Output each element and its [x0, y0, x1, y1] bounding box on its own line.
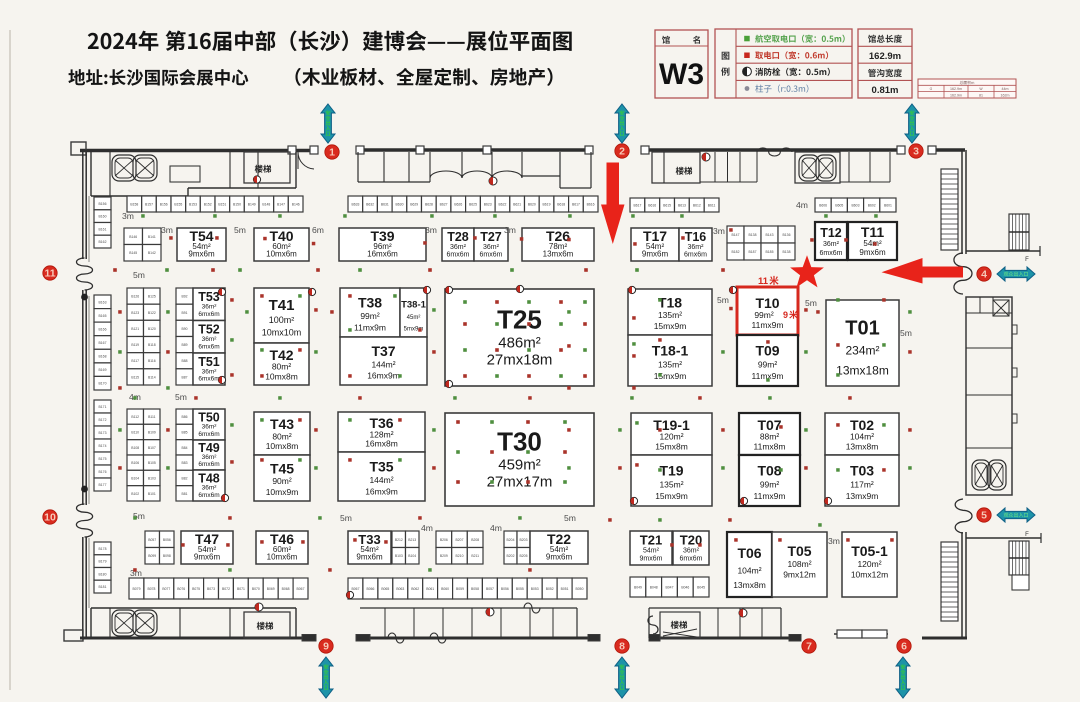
svg-text:B626: B626: [454, 203, 462, 207]
svg-text:B178: B178: [99, 547, 107, 551]
svg-text:9mx6m: 9mx6m: [859, 248, 886, 257]
svg-text:B83: B83: [181, 461, 187, 465]
svg-text:B210: B210: [456, 554, 464, 558]
svg-text:13mx18m: 13mx18m: [836, 363, 889, 377]
svg-text:B119: B119: [131, 343, 139, 347]
svg-text:B069: B069: [267, 587, 275, 591]
svg-text:B179: B179: [99, 560, 107, 564]
svg-text:486m²: 486m²: [498, 335, 541, 352]
svg-text:B212: B212: [395, 538, 403, 542]
svg-text:10: 10: [44, 512, 56, 524]
svg-text:6mx6m: 6mx6m: [198, 376, 219, 383]
svg-text:T05-1: T05-1: [851, 543, 888, 559]
svg-text:B162: B162: [99, 240, 107, 244]
svg-text:3m: 3m: [122, 211, 134, 221]
svg-text:T19: T19: [659, 462, 683, 478]
svg-text:3m: 3m: [161, 225, 173, 235]
svg-text:B049: B049: [634, 586, 642, 590]
svg-text:B147: B147: [732, 233, 740, 237]
svg-text:16mx9m: 16mx9m: [365, 486, 398, 496]
svg-text:11mx9m: 11mx9m: [754, 491, 786, 501]
svg-text:6mx6m: 6mx6m: [680, 555, 703, 562]
svg-text:B89: B89: [181, 343, 187, 347]
svg-text:B107: B107: [148, 446, 156, 450]
svg-text:B079: B079: [133, 587, 141, 591]
svg-text:F: F: [1025, 257, 1029, 263]
svg-text:6: 6: [901, 641, 907, 653]
svg-text:88m²: 88m²: [760, 432, 780, 442]
svg-text:81: 81: [979, 93, 983, 97]
svg-text:B111: B111: [148, 415, 156, 419]
svg-text:13mx8m: 13mx8m: [733, 580, 766, 590]
svg-text:B206: B206: [440, 538, 448, 542]
svg-text:B625: B625: [469, 203, 477, 207]
svg-text:F: F: [1025, 532, 1029, 538]
svg-text:B142: B142: [148, 251, 156, 255]
svg-text:44m: 44m: [1002, 87, 1009, 91]
svg-text:9: 9: [323, 641, 329, 653]
svg-text:G: G: [930, 87, 933, 91]
svg-text:13mx9m: 13mx9m: [846, 491, 879, 501]
svg-text:10mx6m: 10mx6m: [267, 553, 298, 562]
svg-text:B205: B205: [520, 554, 528, 558]
svg-text:T18: T18: [658, 294, 682, 310]
svg-text:B213: B213: [408, 538, 416, 542]
svg-text:11: 11: [758, 276, 769, 287]
svg-text:B202: B202: [507, 554, 515, 558]
svg-text:B173: B173: [99, 431, 107, 435]
svg-text:B149: B149: [248, 203, 256, 207]
svg-text:B611: B611: [708, 204, 716, 208]
svg-text:36m²: 36m²: [483, 244, 500, 251]
svg-text:11: 11: [44, 268, 55, 280]
svg-text:B630: B630: [396, 203, 404, 207]
svg-text:5m: 5m: [175, 392, 187, 402]
svg-text:B627: B627: [440, 203, 448, 207]
svg-text:9mx6m: 9mx6m: [546, 553, 573, 562]
svg-text:27mx18m: 27mx18m: [487, 352, 553, 369]
svg-text:B058: B058: [471, 587, 479, 591]
svg-text:B629: B629: [410, 203, 418, 207]
svg-text:B066: B066: [366, 587, 374, 591]
svg-text:6mx6m: 6mx6m: [198, 492, 219, 499]
svg-text:T49: T49: [198, 441, 220, 455]
svg-text:B112: B112: [131, 415, 139, 419]
svg-text:3m: 3m: [425, 225, 437, 235]
svg-text:B631: B631: [381, 203, 389, 207]
svg-text:6m: 6m: [312, 225, 324, 235]
svg-text:B153: B153: [189, 203, 197, 207]
svg-text:B059: B059: [456, 587, 464, 591]
svg-text:B605: B605: [835, 204, 843, 208]
svg-text:B633: B633: [351, 203, 359, 207]
svg-text:B143: B143: [766, 233, 774, 237]
svg-text:99m²: 99m²: [758, 359, 778, 369]
svg-text:T11: T11: [861, 224, 885, 240]
svg-text:T42: T42: [269, 347, 293, 363]
svg-text:B046: B046: [681, 586, 689, 590]
svg-text:B88: B88: [181, 359, 187, 363]
svg-text:T16: T16: [685, 230, 707, 244]
svg-text:B106: B106: [131, 461, 139, 465]
svg-text:8: 8: [619, 641, 625, 653]
svg-text:B072: B072: [222, 587, 230, 591]
svg-text:B068: B068: [282, 587, 290, 591]
svg-text:10mx12m: 10mx12m: [851, 570, 888, 580]
svg-text:16mx6m: 16mx6m: [367, 250, 398, 259]
svg-text:B116: B116: [148, 359, 156, 363]
svg-text:7: 7: [806, 641, 812, 653]
svg-text:T35: T35: [369, 459, 393, 475]
svg-text:5m: 5m: [900, 328, 912, 338]
svg-text:B617: B617: [633, 204, 641, 208]
svg-text:11mx8m: 11mx8m: [754, 441, 786, 451]
svg-text:T53: T53: [198, 290, 220, 304]
svg-text:104m²: 104m²: [850, 432, 874, 442]
svg-text:100m²: 100m²: [269, 315, 295, 325]
svg-text:B123: B123: [131, 311, 139, 315]
svg-text:T45: T45: [270, 460, 294, 476]
svg-text:B166: B166: [99, 327, 107, 331]
svg-text:B155: B155: [174, 203, 182, 207]
svg-text:B051: B051: [561, 587, 569, 591]
svg-text:B067: B067: [297, 587, 305, 591]
svg-text:T52: T52: [198, 323, 220, 337]
svg-text:B85: B85: [181, 431, 187, 435]
svg-text:135m²: 135m²: [659, 479, 683, 489]
svg-text:3m: 3m: [504, 225, 516, 235]
svg-text:T03: T03: [850, 462, 874, 478]
svg-text:6mx6m: 6mx6m: [820, 250, 843, 257]
svg-text:36m²: 36m²: [202, 336, 218, 343]
svg-text:B618: B618: [557, 203, 565, 207]
svg-text:3m: 3m: [713, 226, 725, 236]
svg-text:B109: B109: [148, 431, 156, 435]
svg-text:B165: B165: [99, 314, 107, 318]
svg-text:B161: B161: [99, 227, 107, 231]
svg-text:B182: B182: [732, 250, 740, 254]
svg-text:B172: B172: [99, 418, 107, 422]
svg-text:B602: B602: [868, 204, 876, 208]
svg-text:B620: B620: [528, 203, 536, 207]
svg-text:B82: B82: [181, 477, 187, 481]
svg-text:B056: B056: [501, 587, 509, 591]
svg-text:T06: T06: [737, 545, 761, 561]
svg-text:5: 5: [981, 510, 987, 522]
svg-text:B163: B163: [99, 300, 107, 304]
svg-text:5m: 5m: [564, 513, 576, 523]
svg-text:T21: T21: [640, 533, 662, 548]
svg-text:10mx6m: 10mx6m: [266, 250, 297, 259]
svg-text:T41: T41: [269, 297, 295, 314]
svg-text:0.81m: 0.81m: [872, 85, 899, 96]
svg-text:T38-1: T38-1: [401, 300, 427, 311]
svg-text:T01: T01: [845, 317, 879, 339]
svg-text:B156: B156: [160, 203, 168, 207]
svg-text:B204: B204: [507, 538, 515, 542]
svg-text:B056: B056: [163, 538, 171, 542]
svg-text:B84: B84: [181, 446, 187, 450]
svg-text:B104: B104: [131, 477, 139, 481]
svg-text:11mx9m: 11mx9m: [752, 320, 784, 330]
svg-text:B122: B122: [148, 311, 156, 315]
svg-text:5m: 5m: [133, 270, 145, 280]
svg-text:B632: B632: [366, 203, 374, 207]
svg-text:9mx6m: 9mx6m: [640, 555, 663, 562]
svg-text:2: 2: [619, 146, 625, 158]
svg-text:B211: B211: [471, 554, 479, 558]
svg-text:9mx6m: 9mx6m: [194, 553, 221, 562]
svg-text:T25: T25: [497, 305, 542, 335]
svg-text:B146: B146: [129, 235, 137, 239]
svg-text:T10: T10: [755, 295, 779, 311]
svg-text:B181: B181: [99, 585, 107, 589]
svg-text:6mx6m: 6mx6m: [198, 311, 219, 318]
svg-text:16mx8m: 16mx8m: [365, 439, 398, 449]
svg-text:B171: B171: [99, 405, 107, 409]
svg-text:B619: B619: [543, 203, 551, 207]
svg-text:B157: B157: [145, 203, 153, 207]
svg-text:B141: B141: [148, 235, 156, 239]
svg-text:T30: T30: [497, 427, 542, 457]
svg-text:B146: B146: [292, 203, 300, 207]
svg-text:B150: B150: [233, 203, 241, 207]
svg-text:B103: B103: [148, 477, 156, 481]
svg-text:B101: B101: [148, 492, 156, 496]
svg-text:B078: B078: [147, 587, 155, 591]
svg-text:10mx9m: 10mx9m: [266, 487, 299, 497]
svg-text:4: 4: [981, 269, 987, 281]
svg-text:B077: B077: [162, 587, 170, 591]
svg-text:B91: B91: [181, 311, 187, 315]
svg-text:T09: T09: [755, 342, 779, 358]
svg-text:B617: B617: [572, 203, 580, 207]
svg-text:10mx10m: 10mx10m: [262, 328, 302, 338]
svg-text:144m²: 144m²: [371, 360, 395, 370]
svg-text:B067: B067: [352, 587, 360, 591]
svg-text:162.9m: 162.9m: [950, 87, 962, 91]
svg-text:B168: B168: [99, 355, 107, 359]
svg-text:T27: T27: [480, 230, 502, 244]
svg-text:B170: B170: [99, 382, 107, 386]
svg-text:B117: B117: [131, 359, 139, 363]
svg-text:B92: B92: [181, 295, 187, 299]
svg-text:13mx8m: 13mx8m: [846, 441, 879, 451]
svg-text:B203: B203: [520, 538, 528, 542]
svg-text:4m: 4m: [796, 200, 808, 210]
svg-text:B138: B138: [749, 233, 757, 237]
svg-text:B175: B175: [99, 457, 107, 461]
svg-text:6mx6m: 6mx6m: [198, 461, 219, 468]
svg-text:9mx6m: 9mx6m: [642, 250, 669, 259]
svg-text:10mx8m: 10mx8m: [265, 371, 298, 381]
svg-text:15mx8m: 15mx8m: [655, 441, 688, 451]
svg-text:5m: 5m: [805, 298, 817, 308]
svg-text:117m²: 117m²: [850, 479, 874, 489]
svg-text:4m: 4m: [490, 523, 502, 533]
svg-text:6mx6m: 6mx6m: [447, 252, 470, 259]
svg-text:108m²: 108m²: [787, 559, 811, 569]
svg-text:B187: B187: [749, 250, 757, 254]
svg-text:6mx6m: 6mx6m: [684, 252, 707, 259]
svg-text:B045: B045: [697, 586, 705, 590]
svg-text:5m: 5m: [717, 295, 729, 305]
svg-text:10mx8m: 10mx8m: [266, 441, 299, 451]
svg-text:9mx6m: 9mx6m: [356, 553, 383, 562]
svg-text:T18-1: T18-1: [652, 342, 689, 358]
svg-text:B628: B628: [425, 203, 433, 207]
svg-text:W3: W3: [659, 58, 704, 91]
svg-text:B102: B102: [131, 492, 139, 496]
svg-text:B207: B207: [456, 538, 464, 542]
svg-text:B623: B623: [484, 203, 492, 207]
svg-text:B073: B073: [207, 587, 215, 591]
svg-text:B114: B114: [148, 375, 156, 379]
svg-text:6mx6m: 6mx6m: [198, 431, 219, 438]
svg-text:B110: B110: [131, 431, 139, 435]
svg-text:162m: 162m: [1001, 93, 1010, 97]
svg-text:B121: B121: [131, 327, 139, 331]
svg-text:B148: B148: [262, 203, 270, 207]
svg-text:36m²: 36m²: [202, 304, 218, 311]
svg-text:144m²: 144m²: [369, 475, 393, 485]
svg-text:B145: B145: [129, 251, 137, 255]
svg-text:T48: T48: [198, 471, 220, 485]
svg-text:T12: T12: [820, 226, 842, 240]
svg-text:36m²: 36m²: [688, 244, 705, 251]
svg-text:B105: B105: [148, 461, 156, 465]
svg-text:B070: B070: [252, 587, 260, 591]
svg-text:B104: B104: [408, 554, 416, 558]
svg-text:80m²: 80m²: [272, 362, 292, 372]
svg-text:T05: T05: [787, 543, 811, 559]
svg-text:11mx9m: 11mx9m: [354, 322, 386, 332]
svg-text:B060: B060: [441, 587, 449, 591]
svg-text:B052: B052: [546, 587, 554, 591]
svg-text:99m²: 99m²: [360, 311, 380, 321]
svg-text:B120: B120: [148, 327, 156, 331]
svg-text:T43: T43: [270, 416, 294, 432]
svg-text:99m²: 99m²: [754, 310, 774, 320]
svg-text:B108: B108: [131, 446, 139, 450]
svg-text:B180: B180: [99, 572, 107, 576]
svg-text:9mx12m: 9mx12m: [783, 570, 816, 580]
svg-text:T02: T02: [850, 417, 874, 433]
svg-text:B601: B601: [884, 204, 892, 208]
svg-text:15mx9m: 15mx9m: [655, 491, 688, 501]
svg-text:3m: 3m: [828, 536, 840, 546]
svg-text:B622: B622: [498, 203, 506, 207]
svg-text:104m²: 104m²: [737, 565, 761, 575]
svg-text:54m²: 54m²: [863, 239, 882, 248]
svg-text:9mx6m: 9mx6m: [188, 250, 215, 259]
svg-text:162.9m: 162.9m: [869, 51, 901, 62]
svg-text:B115: B115: [131, 375, 139, 379]
svg-text:15mx9m: 15mx9m: [654, 321, 687, 331]
svg-text:B048: B048: [650, 586, 658, 590]
svg-text:B057: B057: [148, 538, 156, 542]
svg-text:B616: B616: [587, 203, 595, 207]
svg-text:B053: B053: [531, 587, 539, 591]
svg-text:120m²: 120m²: [659, 432, 683, 442]
svg-text:B047: B047: [666, 586, 674, 590]
svg-text:B208: B208: [471, 538, 479, 542]
svg-text:5m: 5m: [340, 513, 352, 523]
svg-text:T51: T51: [198, 355, 220, 369]
svg-text:36m²: 36m²: [202, 368, 218, 375]
svg-text:B87: B87: [181, 375, 187, 379]
svg-text:B167: B167: [99, 341, 107, 345]
svg-text:B065: B065: [381, 587, 389, 591]
svg-text:135m²: 135m²: [658, 310, 682, 320]
svg-text:B90: B90: [181, 327, 187, 331]
svg-text:B103: B103: [395, 554, 403, 558]
svg-text:B616: B616: [648, 204, 656, 208]
svg-text:B118: B118: [148, 343, 156, 347]
svg-text:B147: B147: [277, 203, 285, 207]
svg-text:B209: B209: [440, 554, 448, 558]
svg-text:B606: B606: [819, 204, 827, 208]
svg-text:B612: B612: [693, 204, 701, 208]
svg-text:B174: B174: [99, 444, 107, 448]
svg-text:T28: T28: [447, 230, 469, 244]
svg-text:16mx9m: 16mx9m: [367, 371, 400, 381]
svg-text:B177: B177: [99, 483, 107, 487]
svg-text:B136: B136: [783, 233, 791, 237]
svg-text:B86: B86: [181, 415, 187, 419]
svg-text:B099: B099: [148, 554, 156, 558]
svg-text:54m²: 54m²: [643, 548, 660, 555]
svg-text:B125: B125: [148, 295, 156, 299]
svg-text:B076: B076: [177, 587, 185, 591]
svg-text:T37: T37: [371, 343, 395, 359]
svg-text:36m²: 36m²: [450, 244, 467, 251]
svg-text:B156: B156: [99, 202, 107, 206]
svg-text:B185: B185: [766, 250, 774, 254]
svg-text:120m²: 120m²: [857, 559, 881, 569]
svg-text:T08: T08: [757, 462, 781, 478]
svg-text:B050: B050: [576, 587, 584, 591]
svg-text:135m²: 135m²: [658, 359, 682, 369]
svg-text:B615: B615: [663, 204, 671, 208]
svg-text:B613: B613: [678, 204, 686, 208]
svg-text:36m²: 36m²: [202, 424, 218, 431]
svg-text:6mx6m: 6mx6m: [198, 344, 219, 351]
svg-text:B152: B152: [204, 203, 212, 207]
svg-text:459m²: 459m²: [498, 457, 541, 474]
svg-text:6mx6m: 6mx6m: [480, 252, 503, 259]
svg-text:36m²: 36m²: [823, 241, 840, 248]
svg-text:B176: B176: [99, 470, 107, 474]
svg-text:5m: 5m: [234, 225, 246, 235]
svg-text:B158: B158: [130, 203, 138, 207]
svg-text:B098: B098: [163, 554, 171, 558]
svg-text:9: 9: [783, 310, 788, 320]
svg-text:B063: B063: [396, 587, 404, 591]
svg-text:T50: T50: [198, 410, 220, 424]
svg-text:36m²: 36m²: [683, 548, 700, 555]
svg-text:13mx6m: 13mx6m: [543, 250, 574, 259]
svg-text:4m: 4m: [421, 523, 433, 533]
svg-text:27mx17m: 27mx17m: [487, 474, 553, 491]
svg-text:99m²: 99m²: [760, 479, 780, 489]
svg-text:B062: B062: [411, 587, 419, 591]
svg-text:B071: B071: [237, 587, 245, 591]
svg-text:B160: B160: [99, 215, 107, 219]
svg-text:3: 3: [913, 146, 919, 158]
svg-text:B169: B169: [99, 368, 107, 372]
svg-text:B621: B621: [513, 203, 521, 207]
